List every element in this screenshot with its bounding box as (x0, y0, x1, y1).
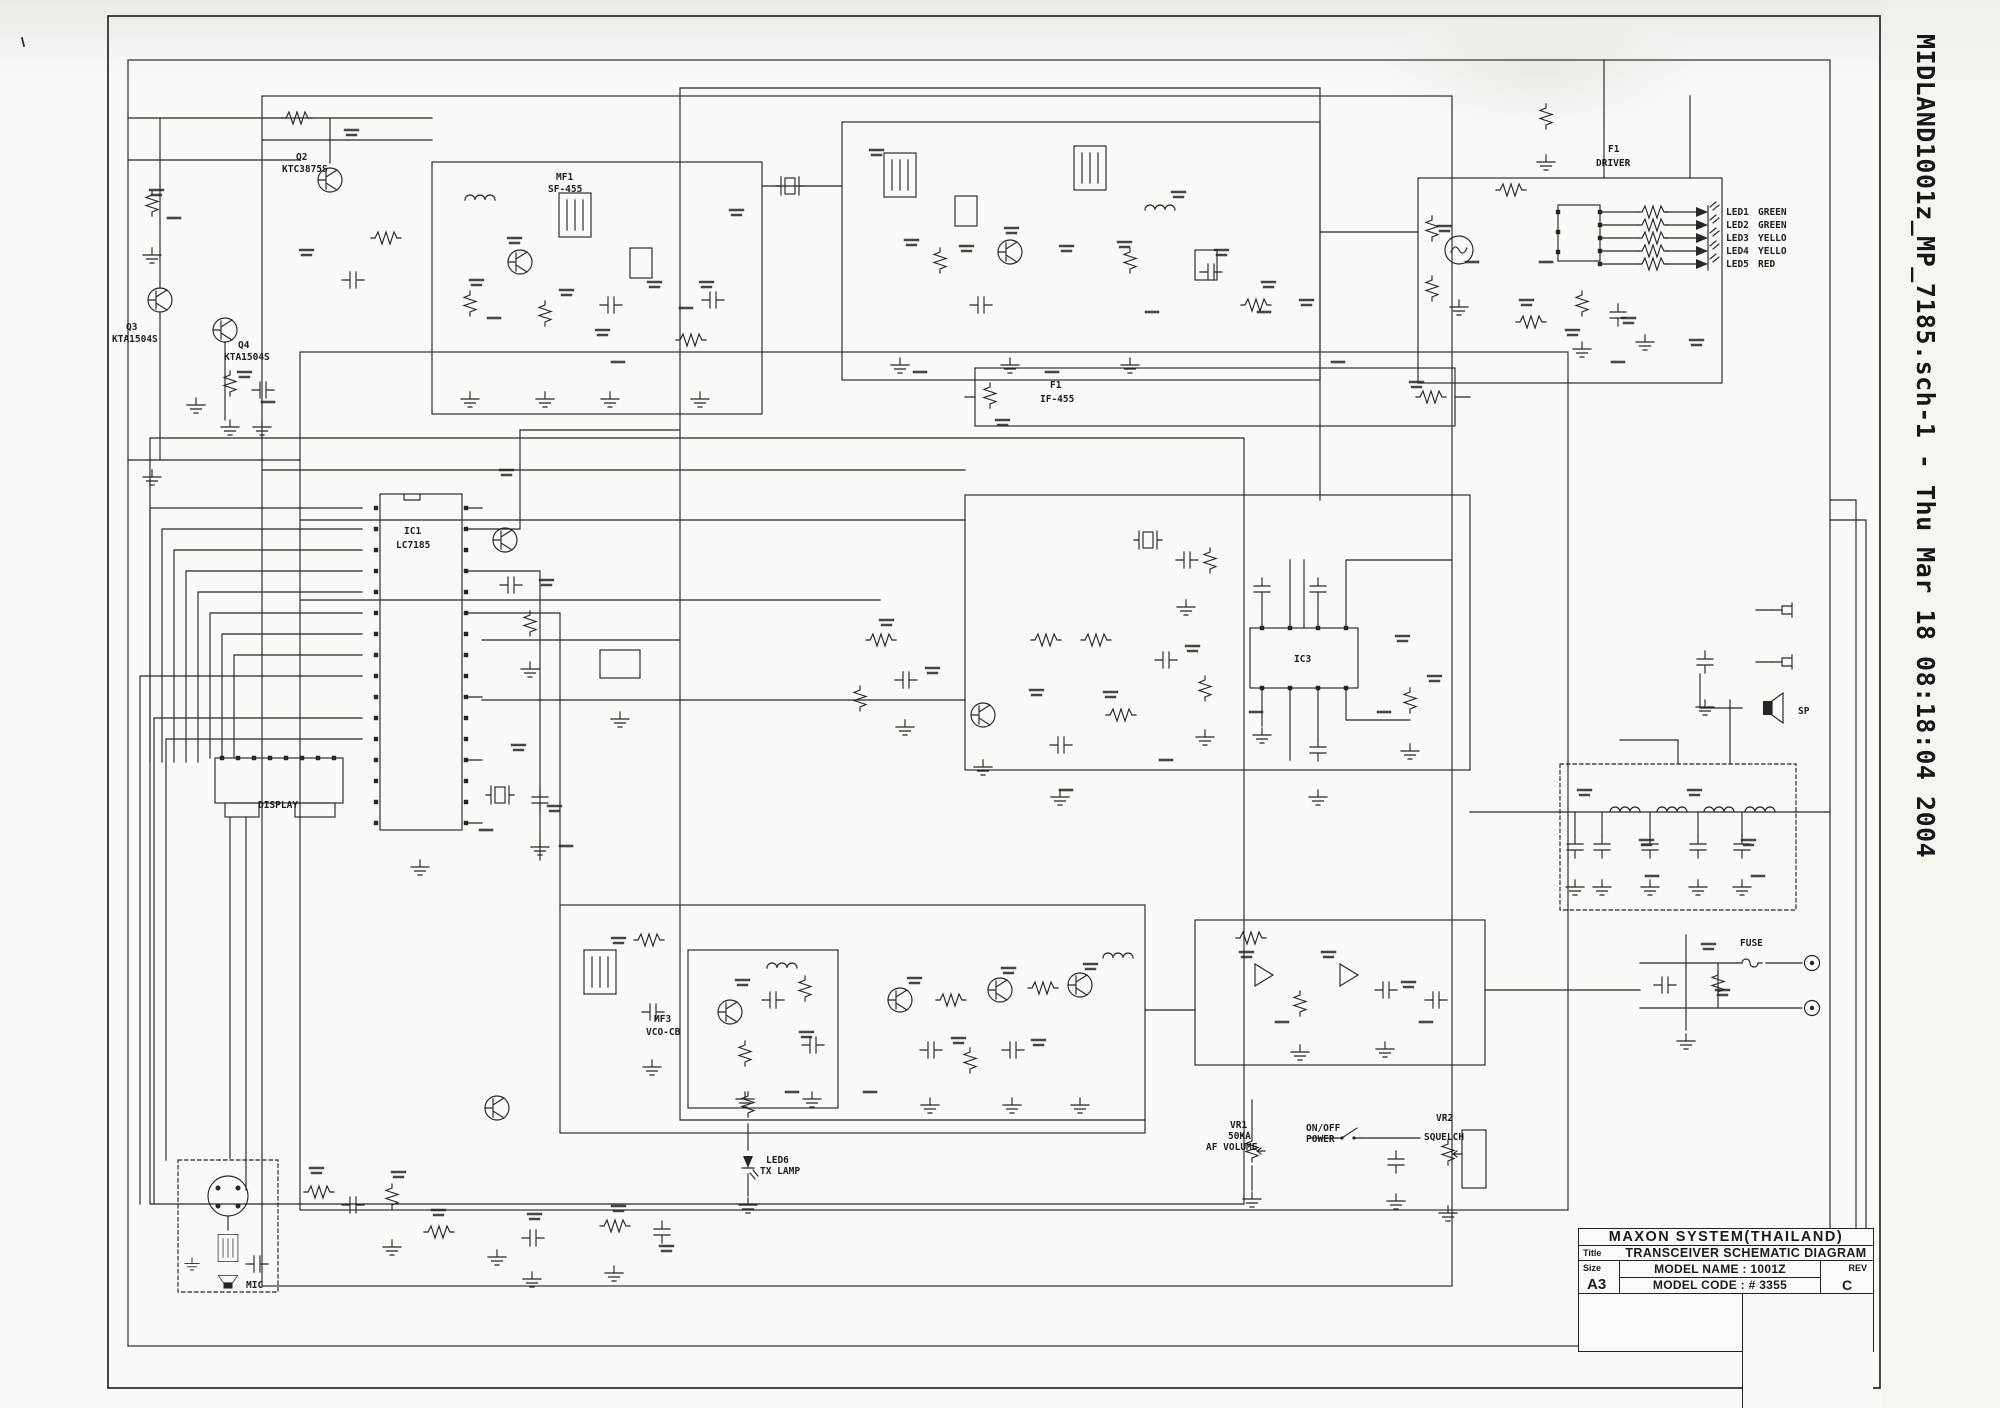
schematic-canvas: MF1SF-455F1IF-455F1DRIVERLED1GREENLED2GR… (0, 0, 2000, 1408)
svg-text:KTA1504S: KTA1504S (112, 334, 158, 345)
svg-text:KTC3875S: KTC3875S (282, 164, 328, 175)
if-amp-block (432, 162, 804, 414)
speaker-icon (1763, 693, 1783, 723)
svg-text:Q2: Q2 (296, 152, 307, 163)
svg-text:LC7185: LC7185 (396, 540, 431, 551)
fuse-icon (1738, 959, 1762, 967)
svg-text:SQUELCH: SQUELCH (1424, 1132, 1464, 1143)
company-name: MAXON SYSTEM(THAILAND) (1579, 1229, 1873, 1246)
svg-text:YELLO: YELLO (1758, 246, 1787, 257)
if-demod-block (842, 122, 1320, 380)
bus-lines (128, 60, 1830, 1010)
svg-text:LED3: LED3 (1726, 233, 1749, 244)
pll-block (600, 495, 1470, 805)
bus-loops (128, 60, 1866, 1346)
micro-label-smudges (150, 130, 1764, 1251)
tx-lamp-led (739, 1092, 758, 1213)
size-label: Size (1583, 1263, 1619, 1273)
svg-text:GREEN: GREEN (1758, 220, 1787, 231)
svg-text:IF-455: IF-455 (1040, 394, 1075, 405)
svg-text:LED2: LED2 (1726, 220, 1749, 231)
title-block: MAXON SYSTEM(THAILAND) Title TRANSCEIVER… (1578, 1228, 1874, 1352)
svg-text:SP: SP (1798, 706, 1810, 717)
svg-text:RED: RED (1758, 259, 1775, 270)
model-name-row: MODEL NAME : 1001Z (1620, 1261, 1820, 1277)
svg-text:MF3: MF3 (654, 1014, 671, 1025)
component-labels: MF1SF-455F1IF-455F1DRIVERLED1GREENLED2GR… (112, 144, 1810, 1291)
svg-text:DRIVER: DRIVER (1596, 158, 1631, 169)
model-code-row: MODEL CODE : # 3355 (1620, 1277, 1820, 1294)
rev-value: C (1821, 1273, 1873, 1293)
svg-text:VR1: VR1 (1230, 1120, 1247, 1131)
svg-text:Q3: Q3 (126, 322, 138, 333)
svg-text:AF VOLUME: AF VOLUME (1206, 1142, 1258, 1153)
drawing-title: TRANSCEIVER SCHEMATIC DIAGRAM (1619, 1246, 1873, 1260)
svg-text:KTA1504S: KTA1504S (224, 352, 270, 363)
power-input (1640, 935, 1820, 1049)
svg-text:SF-455: SF-455 (548, 184, 583, 195)
tx-chain-block (560, 905, 1145, 1133)
svg-text:MIC: MIC (246, 1280, 263, 1291)
svg-text:F1: F1 (1050, 380, 1062, 391)
rx-input-stage (143, 112, 401, 485)
rev-label: REV (1821, 1263, 1873, 1273)
antenna-lpf-block (1560, 700, 1796, 910)
svg-text:LED5: LED5 (1726, 259, 1749, 270)
svg-text:LED4: LED4 (1726, 246, 1749, 257)
svg-text:IC1: IC1 (404, 526, 421, 537)
svg-text:FUSE: FUSE (1740, 938, 1763, 949)
schematic-sheet: MF1SF-455F1IF-455F1DRIVERLED1GREENLED2GR… (0, 0, 2000, 1408)
svg-text:POWER: POWER (1306, 1134, 1335, 1145)
driver-block (1418, 104, 1722, 383)
title-label: Title (1579, 1246, 1619, 1260)
size-value: A3 (1583, 1273, 1619, 1293)
svg-text:DISPLAY: DISPLAY (258, 800, 298, 811)
svg-text:TX LAMP: TX LAMP (760, 1166, 800, 1177)
mic-connector-block (178, 1160, 278, 1292)
svg-text:LED6: LED6 (766, 1155, 789, 1166)
svg-text:Q4: Q4 (238, 340, 250, 351)
bottom-left-parts (304, 1096, 670, 1287)
display-block (215, 756, 343, 1190)
sheet-frame (22, 16, 1880, 1388)
svg-text:IC3: IC3 (1294, 654, 1311, 665)
svg-text:YELLO: YELLO (1758, 233, 1787, 244)
svg-text:ON/OFF: ON/OFF (1306, 1123, 1341, 1134)
svg-text:VR2: VR2 (1436, 1113, 1453, 1124)
svg-text:LED1: LED1 (1726, 207, 1749, 218)
svg-text:GREEN: GREEN (1758, 207, 1787, 218)
svg-text:50KA: 50KA (1228, 1131, 1251, 1142)
audio-block (1195, 920, 1485, 1065)
svg-text:MF1: MF1 (556, 172, 573, 183)
filename-stamp: MIDLAND1001z_MP_7185.sch-1 - Thu Mar 18 … (1912, 34, 1938, 858)
svg-text:F1: F1 (1608, 144, 1620, 155)
audio-out-jacks (1696, 603, 1792, 723)
svg-text:VCO-CB: VCO-CB (646, 1027, 681, 1038)
